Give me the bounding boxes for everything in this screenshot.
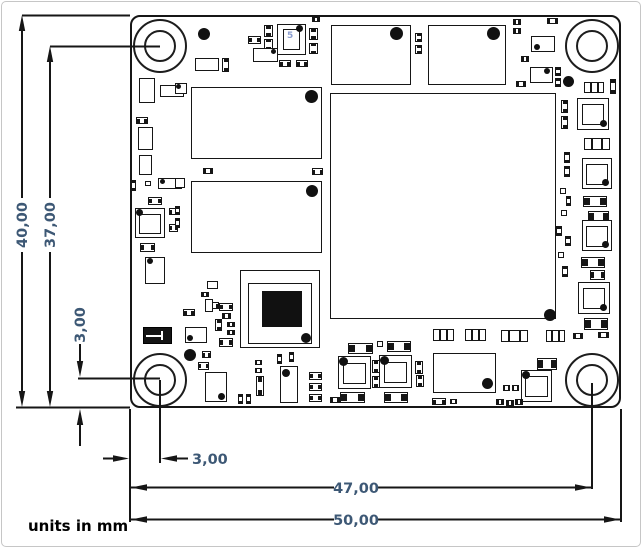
chip-capacitor xyxy=(175,206,180,215)
chip-capacitor xyxy=(372,360,380,373)
marker-dot xyxy=(301,333,311,343)
chip-capacitor xyxy=(215,319,222,331)
chip-capacitor xyxy=(198,362,209,370)
chip-capacitor xyxy=(264,25,273,37)
memory-chip-2 xyxy=(191,181,322,253)
marker-dot xyxy=(218,393,225,400)
chip-capacitor xyxy=(584,82,604,93)
chip-capacitor xyxy=(136,117,148,124)
marker-dot xyxy=(198,28,210,40)
chip-capacitor xyxy=(219,303,233,311)
marker-dot xyxy=(136,209,143,216)
chip-capacitor xyxy=(202,351,211,358)
chip-capacitor xyxy=(203,168,213,174)
chip-capacitor xyxy=(255,360,262,365)
chip-capacitor xyxy=(516,81,526,87)
marker-dot xyxy=(147,258,153,264)
marker-dot xyxy=(176,84,181,89)
marker-dot xyxy=(271,49,276,54)
marker-dot xyxy=(534,44,540,50)
chip-capacitor xyxy=(433,329,454,341)
marker-dot xyxy=(602,241,609,248)
chip-capacitor xyxy=(584,138,610,150)
memory-chip-1 xyxy=(191,87,322,159)
chip-capacitor xyxy=(521,56,529,62)
chip-capacitor xyxy=(583,196,607,207)
smd-chip xyxy=(377,341,383,347)
smd-chip xyxy=(205,299,213,312)
marker-dot xyxy=(339,357,348,366)
chip-capacitor xyxy=(309,43,318,54)
chip-capacitor xyxy=(238,394,243,404)
mounting-hole xyxy=(133,19,187,73)
chip-capacitor xyxy=(547,18,558,24)
chip-capacitor xyxy=(556,226,562,236)
black-crystal xyxy=(143,327,172,344)
mounting-hole xyxy=(565,353,619,407)
chip-capacitor xyxy=(277,354,282,364)
chip-capacitor xyxy=(309,372,322,380)
chip-capacitor xyxy=(227,322,235,327)
chip-capacitor xyxy=(465,329,486,341)
chip-capacitor xyxy=(183,309,195,316)
chip-capacitor xyxy=(248,36,261,44)
chip-capacitor xyxy=(348,343,373,354)
chip-capacitor xyxy=(573,333,583,339)
chip-capacitor xyxy=(513,19,521,25)
units-label: units in mm xyxy=(28,517,128,535)
chip-capacitor xyxy=(555,78,561,87)
marker-dot xyxy=(380,356,389,365)
smd-chip xyxy=(139,78,155,103)
marker-dot xyxy=(602,179,609,186)
component-layer: 5 xyxy=(0,0,642,548)
smd-chip xyxy=(561,210,567,216)
mounting-hole xyxy=(565,19,619,73)
chip-capacitor xyxy=(296,60,308,67)
chip-capacitor xyxy=(289,352,294,362)
marker-dot xyxy=(305,90,318,103)
smd-chip xyxy=(195,58,219,71)
chip-capacitor xyxy=(309,383,322,391)
chip-capacitor xyxy=(201,292,209,297)
chip-capacitor xyxy=(340,392,365,403)
marker-dot xyxy=(160,179,165,184)
smd-chip xyxy=(207,281,218,289)
chip-capacitor xyxy=(566,196,571,206)
chip-capacitor xyxy=(309,394,322,402)
marker-dot xyxy=(184,349,196,361)
smd-chip xyxy=(560,188,566,194)
chip-capacitor xyxy=(598,332,609,338)
smd-chip xyxy=(558,252,564,258)
chip-capacitor xyxy=(416,375,424,387)
chip-capacitor xyxy=(501,330,528,342)
smd-chip xyxy=(139,155,152,175)
chip-capacitor xyxy=(222,58,229,72)
chip-capacitor xyxy=(372,376,380,388)
chip-capacitor xyxy=(312,168,323,175)
marker-dot xyxy=(482,378,493,389)
chip-capacitor xyxy=(564,152,570,163)
chip-capacitor xyxy=(512,385,519,391)
chip-capacitor xyxy=(584,318,608,330)
chip-capacitor xyxy=(432,398,446,405)
marker-dot xyxy=(544,68,550,74)
marker-dot xyxy=(544,309,556,321)
chip-marking: 5 xyxy=(287,32,293,41)
chip-capacitor xyxy=(148,197,162,205)
chip-capacitor xyxy=(256,376,264,396)
chip-capacitor xyxy=(562,266,568,277)
chip-capacitor xyxy=(222,313,231,319)
chip-capacitor xyxy=(131,180,136,191)
marker-dot xyxy=(306,185,318,197)
smd-chip xyxy=(138,127,153,150)
chip-capacitor xyxy=(450,399,457,404)
chip-capacitor xyxy=(515,399,523,405)
chip-capacitor xyxy=(561,100,568,113)
marker-dot xyxy=(282,369,290,377)
chip-capacitor xyxy=(219,338,233,347)
chip-capacitor xyxy=(546,330,565,342)
chip-capacitor xyxy=(387,341,411,352)
chip-capacitor xyxy=(581,257,605,268)
black-chip-die xyxy=(262,291,302,327)
chip-capacitor xyxy=(415,33,422,42)
marker-dot xyxy=(563,76,574,87)
chip-capacitor xyxy=(503,385,510,391)
smd-chip xyxy=(175,178,185,188)
chip-capacitor xyxy=(279,60,291,67)
chip-capacitor xyxy=(610,79,616,94)
chip-capacitor xyxy=(384,392,408,403)
marker-dot xyxy=(187,335,193,341)
chip-capacitor xyxy=(415,361,423,374)
chip-capacitor xyxy=(415,45,422,54)
mounting-hole xyxy=(133,353,187,407)
marker-dot xyxy=(487,27,500,40)
smd-chip xyxy=(145,181,151,186)
pcb-dimension-drawing: 5 40,00 37,00 xyxy=(0,0,642,548)
chip-capacitor xyxy=(561,116,568,129)
chip-capacitor xyxy=(227,330,235,335)
marker-dot xyxy=(600,120,607,127)
chip-capacitor xyxy=(555,67,561,76)
chip-capacitor xyxy=(309,28,318,40)
chip-capacitor xyxy=(537,358,557,370)
marker-dot xyxy=(296,25,303,32)
chip-capacitor xyxy=(140,243,155,252)
chip-capacitor xyxy=(513,28,521,34)
chip-capacitor xyxy=(246,394,251,404)
soc-chip xyxy=(330,93,556,319)
chip-capacitor xyxy=(496,399,504,405)
marker-dot xyxy=(522,371,530,379)
marker-dot xyxy=(390,27,403,40)
chip-capacitor xyxy=(564,166,570,177)
marker-dot xyxy=(600,304,607,311)
chip-capacitor xyxy=(312,17,320,22)
chip-capacitor xyxy=(175,218,180,228)
chip-capacitor xyxy=(506,400,514,406)
chip-capacitor xyxy=(565,236,571,246)
chip-capacitor xyxy=(255,368,262,373)
chip-capacitor xyxy=(330,397,340,403)
chip-capacitor xyxy=(590,270,605,280)
